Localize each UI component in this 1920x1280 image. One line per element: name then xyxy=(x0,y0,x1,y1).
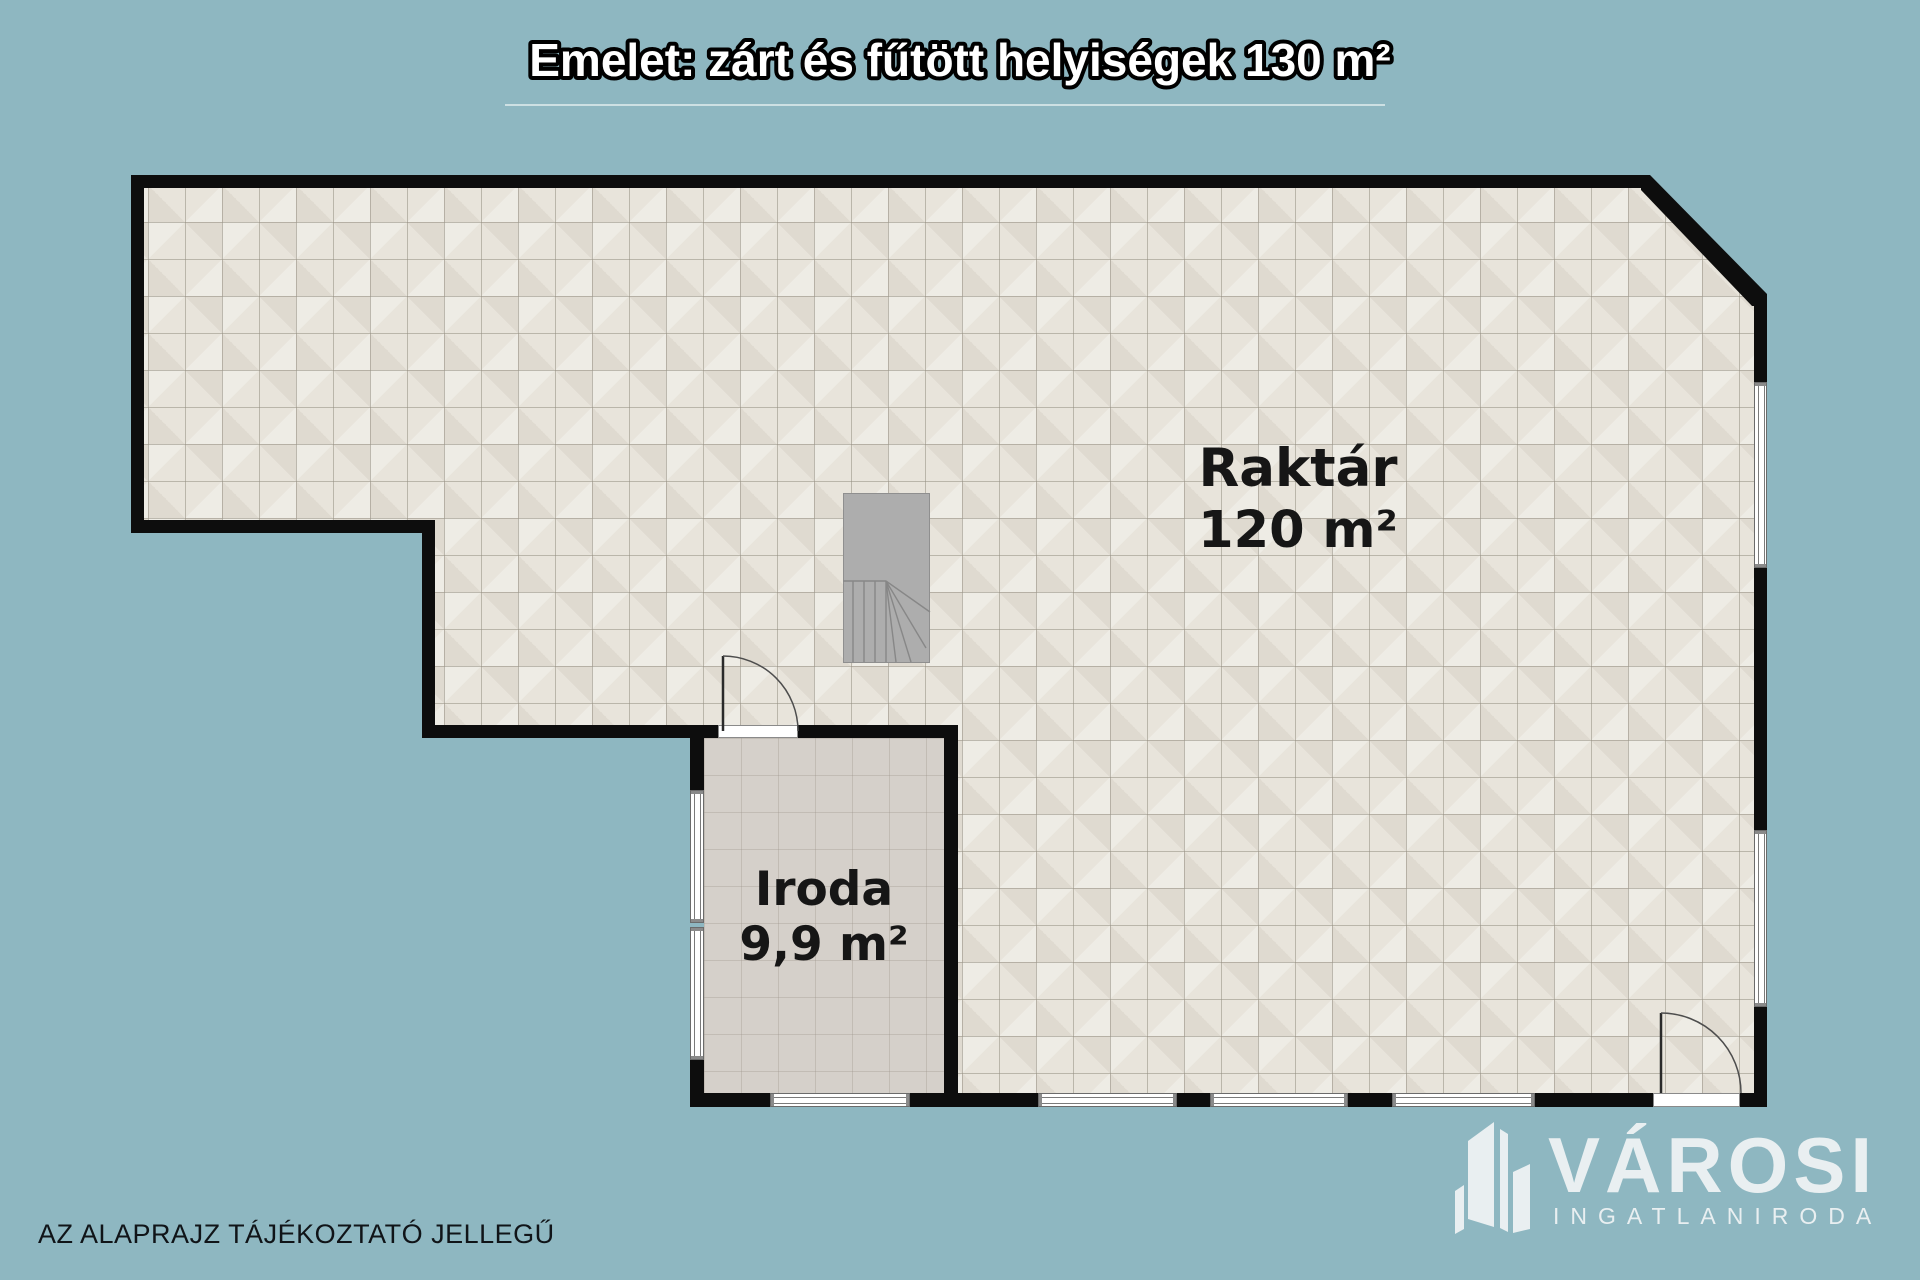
window-right-lower xyxy=(1754,830,1767,1007)
window-bottom-3 xyxy=(1392,1093,1535,1107)
warehouse-floor xyxy=(0,0,1920,1280)
wall-bottom-seg2 xyxy=(910,1093,1038,1107)
wall-office-top-right xyxy=(798,725,958,738)
page-title: Emelet: zárt és fűtött helyiségek 130 m² xyxy=(529,34,1391,86)
room-label-raktar: Raktár 120 m² xyxy=(1148,438,1448,561)
page-title-svg: Emelet: zárt és fűtött helyiségek 130 m² xyxy=(0,0,1920,130)
wall-bottom-seg6 xyxy=(1740,1093,1767,1107)
logo-buildings-icon xyxy=(1455,1122,1530,1234)
window-right-upper xyxy=(1754,382,1767,568)
window-bottom-2 xyxy=(1210,1093,1348,1107)
logo-name: VÁROSI xyxy=(1548,1126,1877,1204)
room-name-iroda: Iroda xyxy=(702,862,946,917)
wall-office-top-left xyxy=(422,725,718,738)
logo-subtitle: INGATLANIRODA xyxy=(1553,1205,1882,1228)
wall-office-right xyxy=(944,738,958,1093)
wall-right-lower xyxy=(1754,1007,1767,1107)
wall-right-middle xyxy=(1754,568,1767,830)
wall-step-horizontal xyxy=(131,520,435,533)
wall-bottom-seg4 xyxy=(1348,1093,1392,1107)
wall-right-upper xyxy=(1754,294,1767,382)
door-opening-warehouse xyxy=(1653,1093,1740,1107)
wall-bottom-seg3 xyxy=(1177,1093,1210,1107)
staircase xyxy=(843,493,930,663)
wall-office-left-upper xyxy=(690,725,704,790)
window-office-bottom xyxy=(770,1093,910,1107)
disclaimer-text: AZ ALAPRAJZ TÁJÉKOZTATÓ JELLEGŰ xyxy=(38,1219,555,1250)
door-opening-office xyxy=(718,725,798,738)
wall-step-vertical xyxy=(422,520,435,738)
window-bottom-1 xyxy=(1038,1093,1177,1107)
wall-top xyxy=(131,175,1648,188)
wall-bottom-seg5 xyxy=(1535,1093,1653,1107)
room-area-iroda: 9,9 m² xyxy=(702,917,946,972)
wall-left-upper xyxy=(131,175,144,533)
room-area-raktar: 120 m² xyxy=(1148,501,1448,561)
room-name-raktar: Raktár xyxy=(1148,438,1448,501)
room-label-iroda: Iroda 9,9 m² xyxy=(702,862,946,973)
floor-plan-page: Emelet: zárt és fűtött helyiségek 130 m² xyxy=(0,0,1920,1280)
title-underline xyxy=(505,104,1385,106)
wall-bottom-seg1 xyxy=(690,1093,770,1107)
